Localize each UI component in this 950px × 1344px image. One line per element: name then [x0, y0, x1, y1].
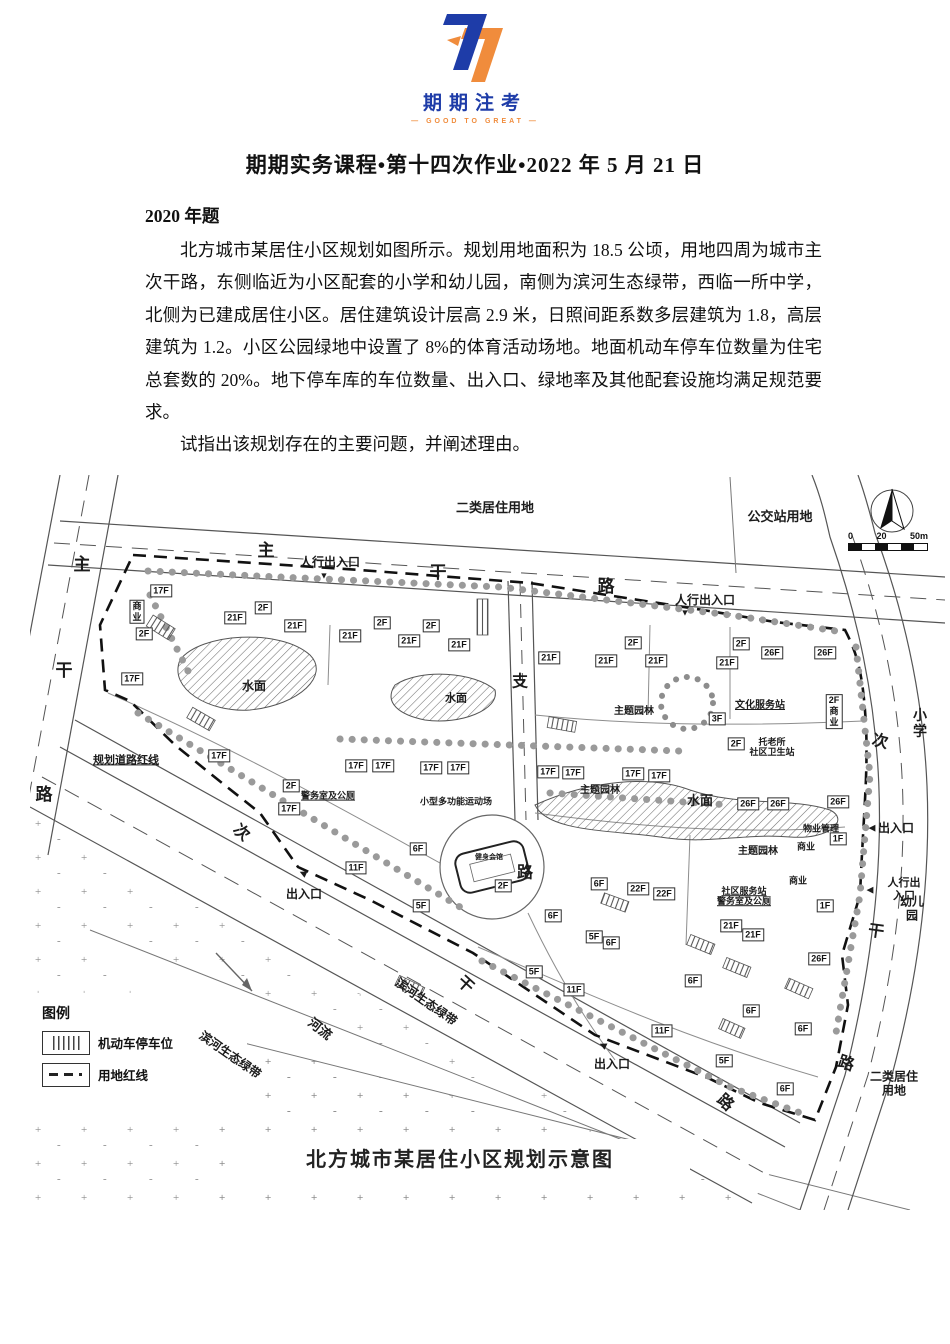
- building-label: 5F: [413, 899, 430, 912]
- pedestrian-entrance-label: 人行出入口: [884, 876, 925, 902]
- scale-ticks: 0 20 50m: [848, 531, 928, 541]
- legend-redline-label: 用地红线: [98, 1065, 148, 1084]
- building-label: 11F: [651, 1024, 672, 1037]
- facility-label: 商业: [789, 875, 807, 886]
- building-label: 2F: [625, 636, 642, 649]
- building-label: 26F: [827, 795, 849, 808]
- building-label: 21F: [448, 638, 470, 651]
- building-label: 21F: [742, 928, 764, 941]
- building-label: 6F: [685, 974, 702, 987]
- adjacent-landuse-label: 二类居住用地: [869, 1069, 920, 1098]
- water-label: 水面: [242, 678, 266, 692]
- road-label-branch: 支: [512, 672, 528, 691]
- building-label: 26F: [737, 797, 759, 810]
- building-label: 11F: [563, 983, 584, 996]
- building-label: 3F: [709, 712, 726, 725]
- entrance-arrow-icon: ◀: [298, 866, 309, 879]
- water-label: 水面: [687, 793, 713, 809]
- road-label-west-main: 主: [74, 554, 91, 574]
- building-label: 22F: [627, 882, 649, 895]
- building-label: 22F: [653, 887, 675, 900]
- facility-label: 健身会馆: [475, 853, 503, 861]
- building-label: 6F: [591, 877, 608, 890]
- building-label: 11F: [345, 861, 366, 874]
- building-label: 17F: [420, 761, 442, 774]
- building-label: 17F: [121, 672, 143, 685]
- pedestrian-entrance-label: 人行出入口: [675, 592, 735, 606]
- red-line-label: 规划道路红线: [93, 754, 159, 767]
- road-label-west-main: 干: [56, 660, 73, 680]
- building-label: 2F: [136, 627, 153, 640]
- facility-label: 商业: [797, 841, 815, 852]
- garden-label: 主题园林: [614, 706, 654, 718]
- vehicle-entrance-label: 出入口: [286, 886, 322, 900]
- facility-label: 小型多功能运动场: [420, 796, 492, 807]
- road-label-north-main: 主: [258, 540, 275, 560]
- road-label-west-main: 路: [36, 784, 53, 804]
- building-label: 6F: [545, 909, 562, 922]
- building-label: 17F: [150, 584, 172, 597]
- building-label: 17F: [208, 749, 230, 762]
- page-title: 期期实务课程•第十四次作业•2022 年 5 月 21 日: [0, 149, 950, 179]
- building-label: 6F: [603, 936, 620, 949]
- building-label: 5F: [526, 965, 543, 978]
- road-label-branch: 路: [517, 863, 533, 882]
- scale-bar-strip: [848, 543, 928, 551]
- map-label-overlay: 主干路主干路支路次干路次干路二类居住用地公交站用地小学幼儿园二类居住用地河流滨河…: [30, 475, 945, 1210]
- legend-parking-icon: [42, 1031, 90, 1055]
- building-label: 6F: [777, 1082, 794, 1095]
- legend-redline-icon: [42, 1063, 90, 1087]
- building-label: 17F: [537, 765, 559, 778]
- building-label: 6F: [743, 1004, 760, 1017]
- adjacent-landuse-label: 小学: [908, 707, 933, 741]
- map-caption: 北方城市某居住小区规划示意图: [180, 1143, 740, 1172]
- scale-tick: 20: [876, 531, 886, 541]
- problem-paragraph: 北方城市某居住小区规划如图所示。规划用地面积为 18.5 公顷，用地四周为城市主…: [145, 234, 822, 428]
- scale-bar: 0 20 50m: [848, 531, 928, 551]
- road-label-north-main: 干: [430, 562, 447, 582]
- scale-tick: 50m: [910, 531, 928, 541]
- building-label: 21F: [720, 919, 742, 932]
- entrance-arrow-icon: ◀: [867, 884, 874, 895]
- brand-tagline: — GOOD TO GREAT —: [411, 118, 539, 125]
- building-label: 6F: [795, 1022, 812, 1035]
- building-label: 26F: [767, 797, 789, 810]
- entrance-arrow-icon: ◀: [869, 822, 876, 833]
- building-label: 21F: [645, 654, 667, 667]
- section-heading: 2020 年题: [145, 203, 820, 228]
- building-label: 2F: [423, 619, 440, 632]
- river-label: 河流: [305, 1014, 335, 1042]
- building-label: 1F: [830, 832, 847, 845]
- building-label: 17F: [345, 759, 367, 772]
- building-label: 商 业: [129, 599, 144, 624]
- adjacent-landuse-label: 公交站用地: [747, 509, 812, 525]
- road-label-north-main: 路: [598, 576, 615, 596]
- scale-tick: 0: [848, 531, 853, 541]
- garden-label: 主题园林: [580, 785, 620, 797]
- legend-title: 图例: [42, 1003, 173, 1023]
- adjacent-landuse-label: 二类居住用地: [456, 500, 534, 516]
- logo-mark-icon: [427, 12, 523, 86]
- building-label: 17F: [278, 802, 300, 815]
- building-label: 5F: [716, 1054, 733, 1067]
- building-label: 2F: [733, 637, 750, 650]
- building-label: 21F: [284, 619, 306, 632]
- building-label: 2F: [728, 737, 745, 750]
- building-label: 26F: [814, 646, 836, 659]
- greenbelt-label: 滨河生态绿带: [196, 1028, 263, 1081]
- building-label: 2F 商 业: [826, 694, 843, 730]
- building-label: 2F: [495, 879, 512, 892]
- building-label: 21F: [339, 629, 361, 642]
- entrance-arrow-icon: ◀: [598, 1038, 609, 1051]
- building-label: 17F: [648, 769, 670, 782]
- site-plan-map: + -: [30, 475, 945, 1215]
- road-label-east-secondary: 次: [870, 730, 890, 752]
- facility-label: 社区服务站 警务室及公厕: [717, 886, 771, 908]
- map-legend: 图例 机动车停车位 用地红线: [42, 1003, 173, 1095]
- building-label: 2F: [255, 601, 272, 614]
- problem-question: 试指出该规划存在的主要问题，并阐述理由。: [145, 428, 822, 460]
- building-label: 17F: [562, 766, 584, 779]
- legend-parking-label: 机动车停车位: [98, 1033, 173, 1052]
- road-label-south-secondary: 干: [453, 972, 478, 997]
- vehicle-entrance-label: 出入口: [878, 820, 914, 834]
- facility-label: 文化服务站: [735, 700, 785, 712]
- building-label: 26F: [761, 646, 783, 659]
- building-label: 17F: [622, 767, 644, 780]
- building-label: 26F: [808, 952, 830, 965]
- building-label: 1F: [817, 899, 834, 912]
- greenbelt-label: 滨河生态绿带: [392, 975, 459, 1028]
- road-label-east-secondary: 路: [835, 1052, 856, 1075]
- facility-label: 警务室及公厕: [301, 790, 355, 801]
- pedestrian-entrance-label: 人行出入口: [300, 554, 360, 568]
- entrance-arrow-icon: ▼: [681, 607, 690, 618]
- building-label: 17F: [447, 761, 469, 774]
- legend-item-parking: 机动车停车位: [42, 1031, 173, 1055]
- building-label: 21F: [224, 611, 246, 624]
- building-label: 21F: [398, 634, 420, 647]
- road-label-east-secondary: 干: [867, 921, 886, 942]
- garden-label: 主题园林: [738, 846, 778, 858]
- logo-block: 期期注考 — GOOD TO GREAT —: [0, 0, 950, 125]
- building-label: 21F: [538, 651, 560, 664]
- building-label: 2F: [283, 779, 300, 792]
- road-label-south-secondary: 路: [713, 1090, 738, 1115]
- building-label: 21F: [595, 654, 617, 667]
- facility-label: 托老所 社区卫生站: [749, 737, 794, 759]
- building-label: 5F: [586, 930, 603, 943]
- entrance-arrow-icon: ▼: [320, 570, 329, 581]
- building-label: 2F: [374, 616, 391, 629]
- building-label: 17F: [372, 759, 394, 772]
- vehicle-entrance-label: 出入口: [594, 1056, 630, 1070]
- building-label: 21F: [716, 656, 738, 669]
- brand-name: 期期注考: [423, 88, 527, 115]
- legend-item-redline: 用地红线: [42, 1063, 173, 1087]
- water-label: 水面: [445, 692, 467, 705]
- building-label: 6F: [410, 842, 427, 855]
- road-label-south-secondary: 次: [229, 820, 254, 845]
